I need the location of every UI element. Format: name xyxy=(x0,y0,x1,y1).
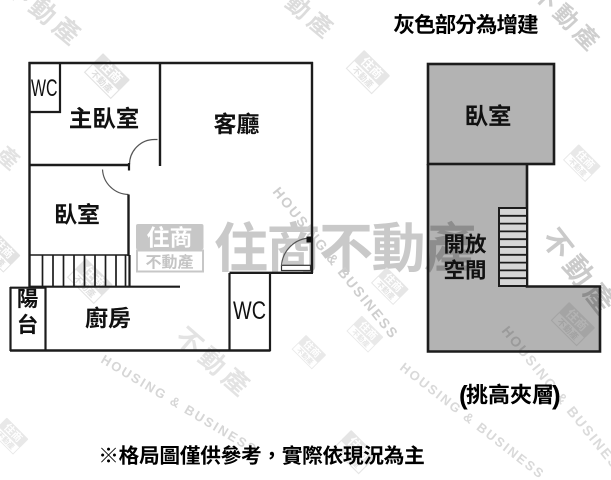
svg-text:WC: WC xyxy=(233,297,266,325)
svg-text:): ) xyxy=(552,380,561,410)
svg-text:WC: WC xyxy=(31,75,58,102)
